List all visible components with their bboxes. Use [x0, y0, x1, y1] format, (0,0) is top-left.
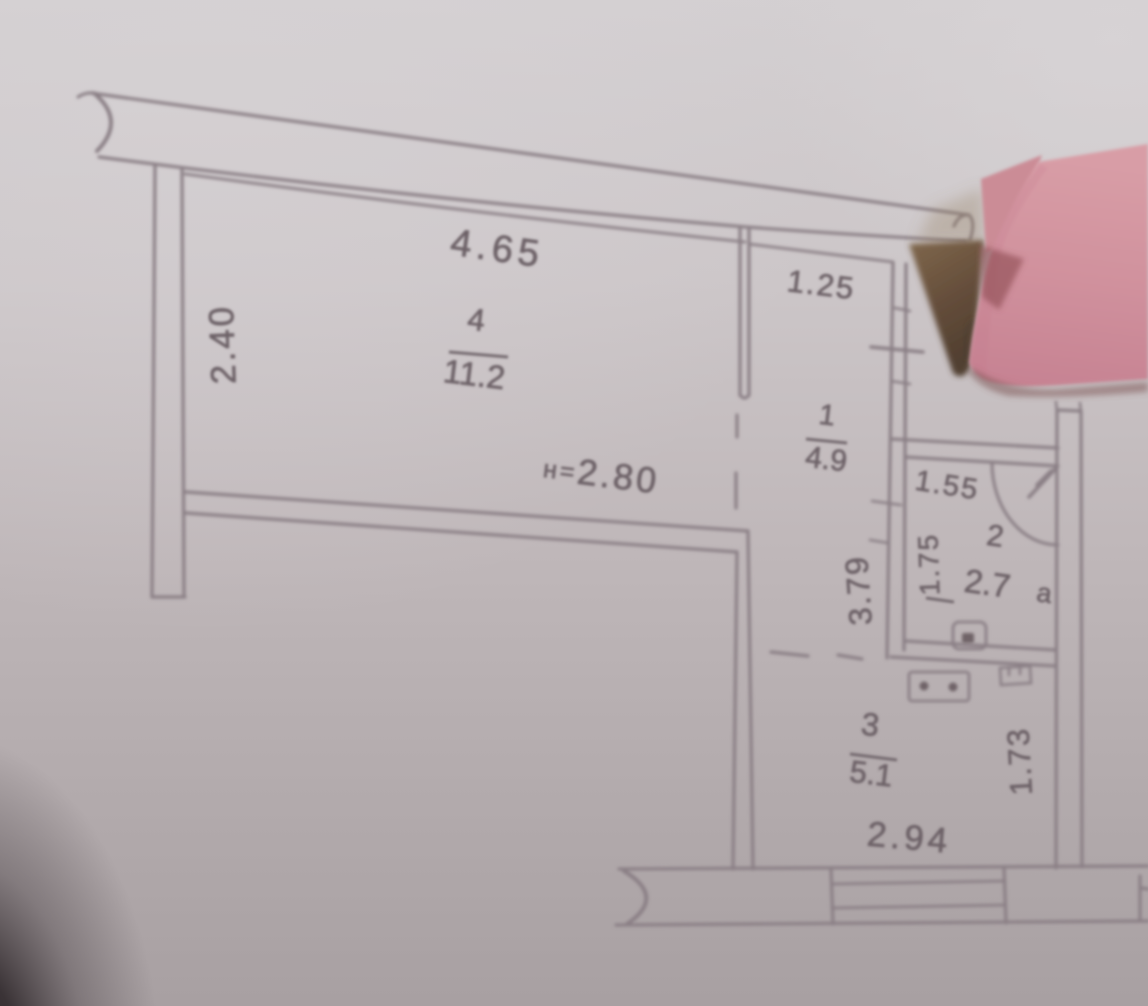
- svg-text:11.2: 11.2: [441, 352, 507, 396]
- svg-text:1.75: 1.75: [912, 532, 945, 596]
- svg-text:5.1: 5.1: [848, 754, 895, 794]
- svg-text:1.73: 1.73: [1000, 726, 1039, 796]
- svg-text:2.40: 2.40: [202, 303, 244, 384]
- svg-text:2.7: 2.7: [962, 562, 1013, 605]
- svg-text:3.79: 3.79: [838, 554, 879, 627]
- svg-text:2.94: 2.94: [866, 815, 953, 861]
- svg-text:4.9: 4.9: [803, 441, 848, 479]
